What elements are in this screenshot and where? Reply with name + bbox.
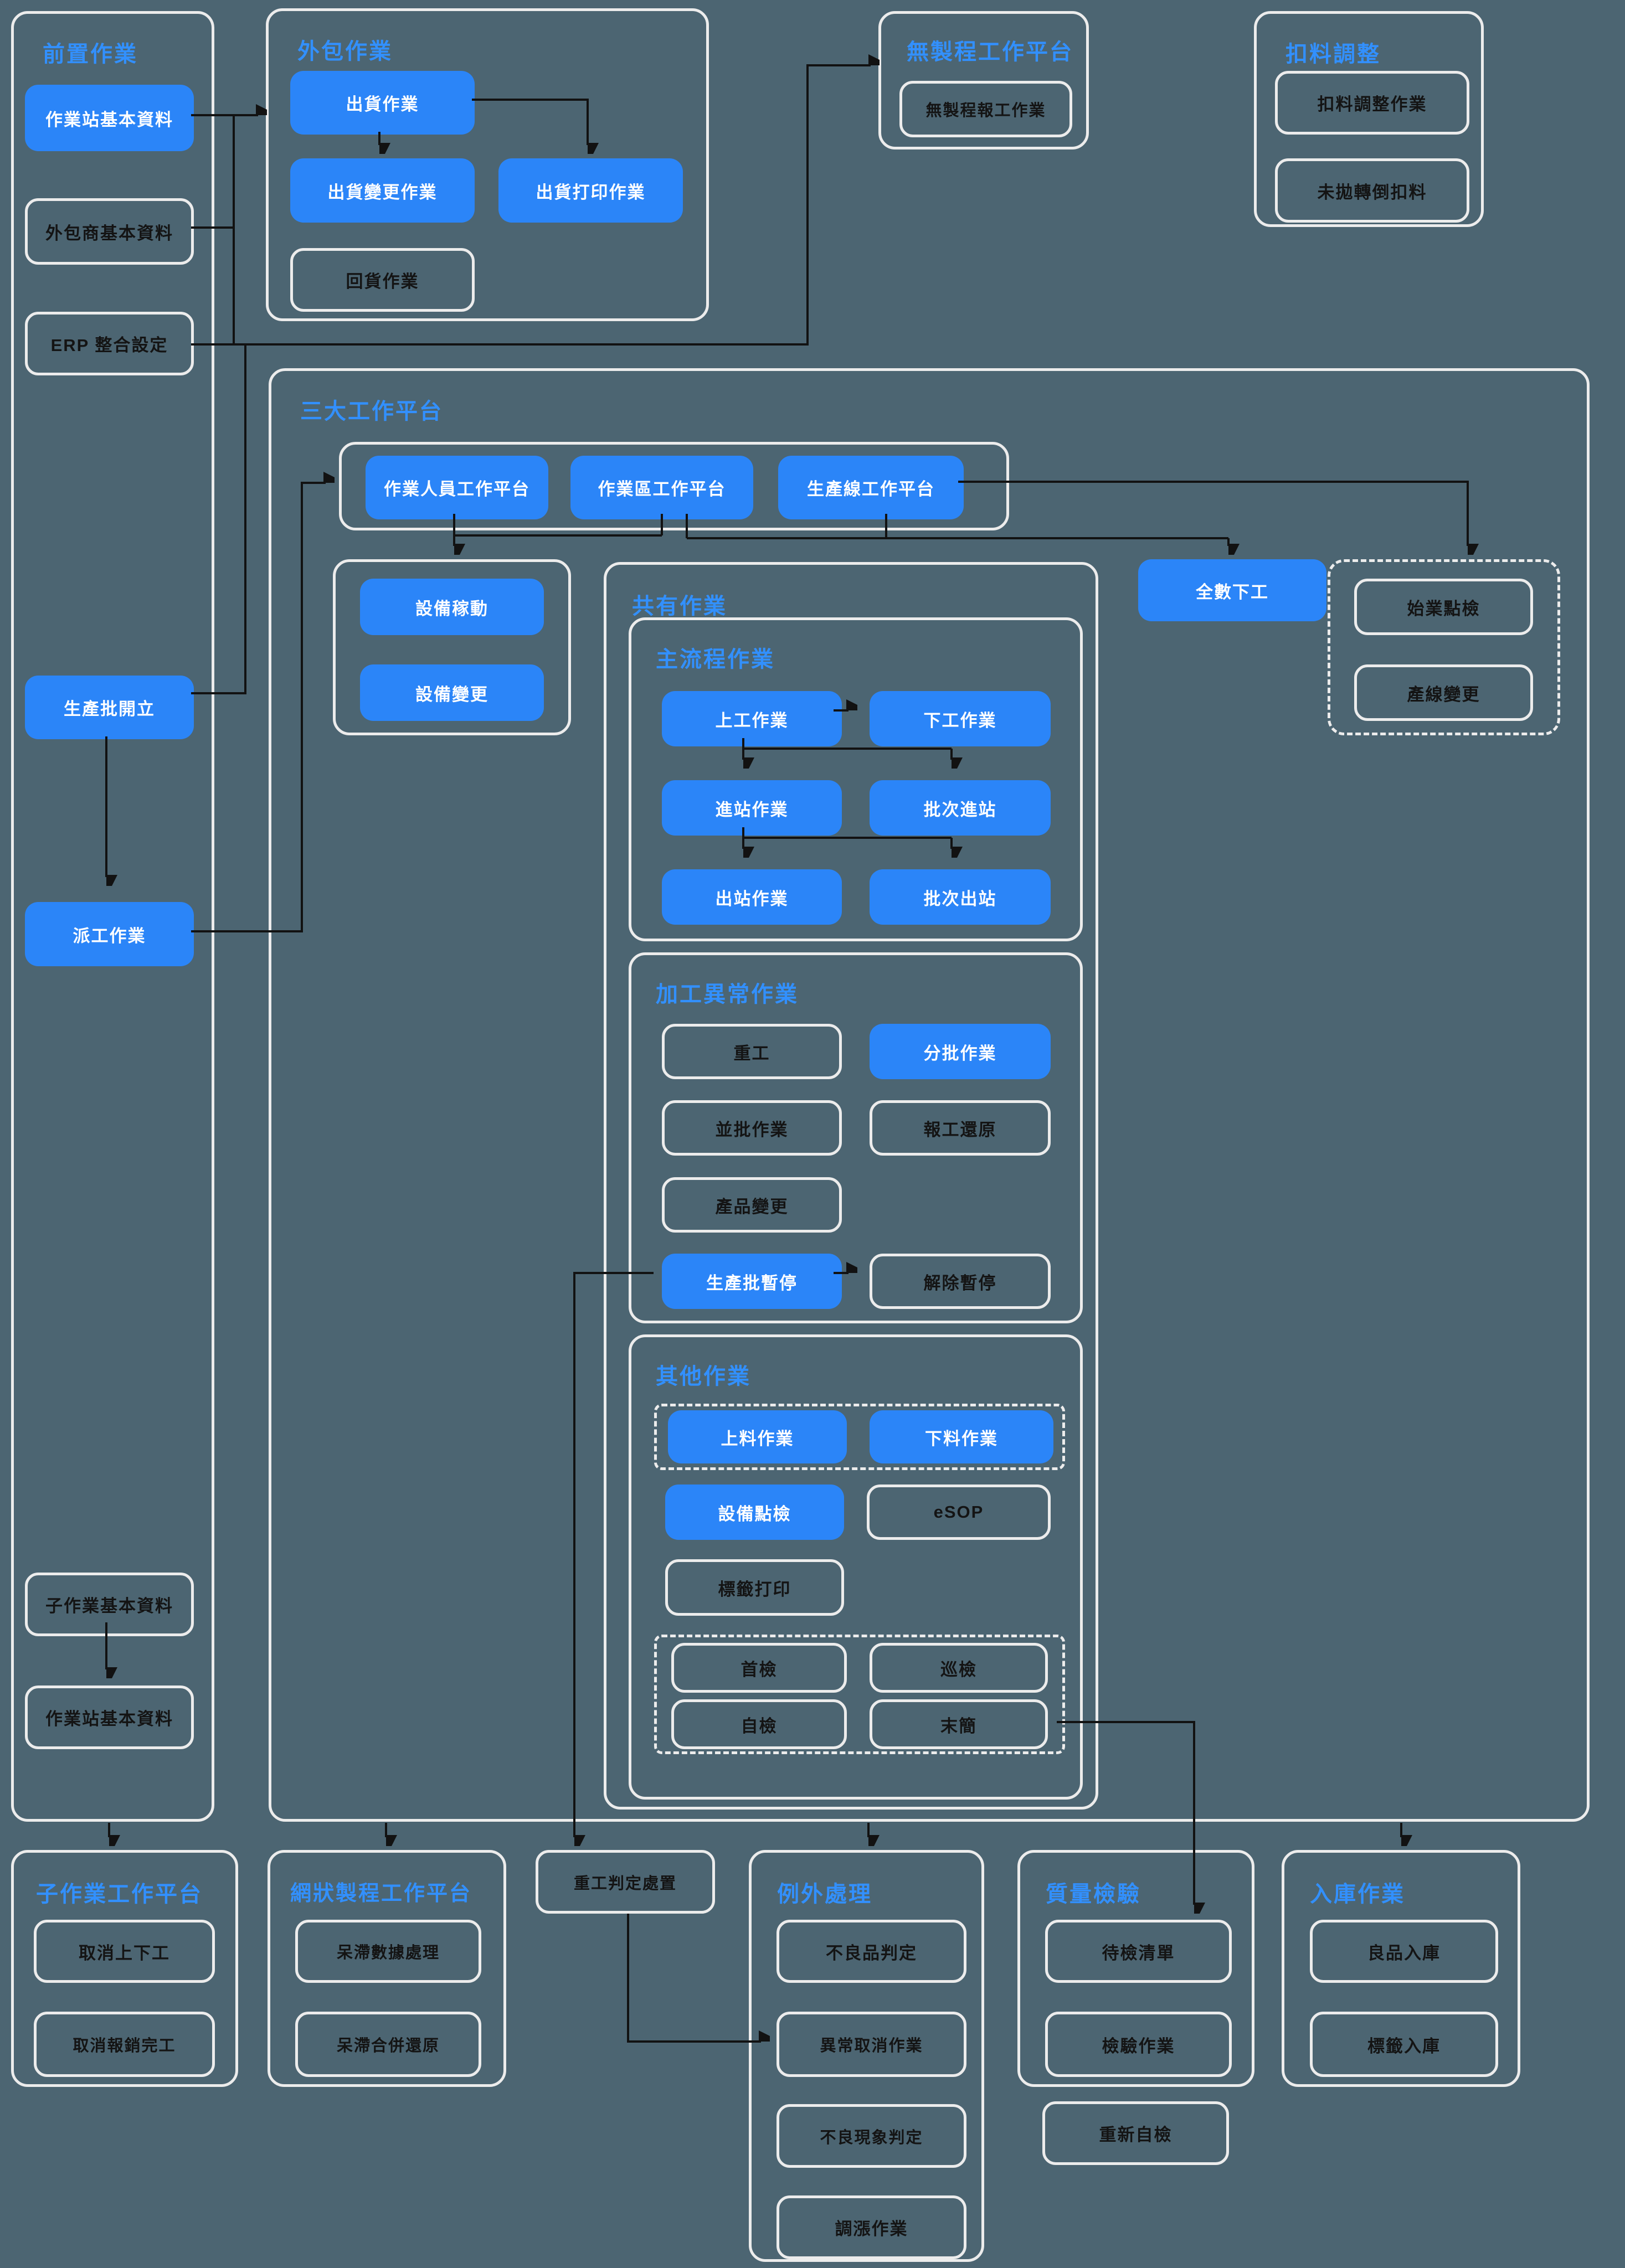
node-pending-list: 待檢清單 [1045,1920,1232,1983]
group-equipment: 設備稼動 設備變更 [333,559,571,735]
node-on-work: 上工作業 [662,691,842,746]
node-product-change: 產品變更 [662,1177,842,1233]
group-three-platforms: 三大工作平台 作業人員工作平台 作業區工作平台 生產線工作平台 設備稼動 設備變… [269,368,1590,1822]
group-title: 三大工作平台 [300,393,443,425]
node-merge-batch: 並批作業 [662,1100,842,1156]
mes-flow-diagram: 前置作業 作業站基本資料 外包商基本資料 ERP 整合設定 生產批開立 派工作業… [0,0,1625,2268]
node-defect-phenomenon: 不良現象判定 [776,2104,966,2168]
subgroup-inspection: 首檢 巡檢 自檢 末簡 [654,1635,1065,1754]
node-station-out: 出站作業 [662,869,842,925]
node-platform-operator: 作業人員工作平台 [366,456,548,519]
node-platform-area: 作業區工作平台 [570,456,753,519]
node-all-off-work: 全數下工 [1138,559,1326,621]
group-title: 共有作業 [632,588,727,620]
node-pause-release: 解除暫停 [870,1254,1051,1309]
node-workstation-basic: 作業站基本資料 [25,85,194,151]
group-mesh-process-platform: 網狀製程工作平台 呆滯數據處理 呆滯合併還原 [268,1850,506,2087]
node-equip-change: 設備變更 [360,664,544,721]
node-stagnant-data: 呆滯數據處理 [295,1920,481,1983]
subgroup-material: 上料作業 下料作業 [654,1404,1065,1470]
group-title: 質量檢驗 [1046,1876,1141,1908]
group-title: 子作業工作平台 [36,1876,203,1908]
node-esop: eSOP [867,1484,1051,1540]
group-main-flow: 主流程作業 上工作業 下工作業 進站作業 批次進站 出站作業 批次出站 [629,617,1083,941]
node-patrol-inspect: 巡檢 [870,1643,1048,1693]
node-stagnant-merge: 呆滯合併還原 [295,2012,481,2077]
group-title: 主流程作業 [656,641,775,673]
group-process-abnormal: 加工異常作業 重工 分批作業 並批作業 報工還原 產品變更 生產批暫停 解除暫停 [629,952,1083,1323]
node-deduct-unposted: 未拋轉倒扣料 [1275,158,1469,223]
group-deduct-adjust: 扣料調整 扣料調整作業 未拋轉倒扣料 [1254,11,1484,227]
group-title: 無製程工作平台 [907,34,1073,66]
group-title: 前置作業 [43,36,138,68]
group-title: 外包作業 [297,33,393,65]
node-good-in: 良品入庫 [1310,1920,1498,1983]
group-pre-operations: 前置作業 作業站基本資料 外包商基本資料 ERP 整合設定 生產批開立 派工作業… [11,11,214,1822]
node-vendor-basic: 外包商基本資料 [25,198,194,265]
group-warehouse: 入庫作業 良品入庫 標籤入庫 [1282,1850,1520,2087]
node-rework: 重工 [662,1024,842,1079]
node-self-inspect: 自檢 [671,1699,847,1749]
node-line-change: 產線變更 [1354,664,1533,721]
node-cancel-onoff: 取消上下工 [34,1920,215,1983]
node-startup-check: 始業點檢 [1354,579,1533,635]
node-equip-utilization: 設備稼動 [360,579,544,635]
node-report-restore: 報工還原 [870,1100,1051,1156]
node-last-inspect: 末簡 [870,1699,1048,1749]
node-deduct-adjust: 扣料調整作業 [1275,71,1469,135]
node-sub-op-basic: 子作業基本資料 [25,1573,194,1636]
node-workstation-basic-2: 作業站基本資料 [25,1685,194,1749]
node-rework-judge: 重工判定處置 [536,1850,715,1914]
node-re-self-check: 重新自檢 [1042,2101,1229,2165]
node-adjust-op: 調漲作業 [776,2195,966,2259]
group-exception: 例外處理 不良品判定 異常取消作業 不良現象判定 調漲作業 [749,1850,984,2262]
group-title: 網狀製程工作平台 [290,1876,472,1906]
container-platform-row: 作業人員工作平台 作業區工作平台 生產線工作平台 [339,442,1009,530]
node-ship-return: 回貨作業 [290,248,475,312]
node-batch-out: 批次出站 [870,869,1051,925]
node-platform-line: 生產線工作平台 [778,456,964,519]
group-sub-op-platform: 子作業工作平台 取消上下工 取消報銷完工 [11,1850,238,2087]
node-dispatch: 派工作業 [25,902,194,966]
node-material-load: 上料作業 [668,1410,847,1463]
node-erp-integration: ERP 整合設定 [25,312,194,375]
group-title: 其他作業 [656,1358,751,1390]
node-inspect-op: 檢驗作業 [1045,2012,1232,2077]
node-noproc-report: 無製程報工作業 [899,81,1072,137]
group-title: 加工異常作業 [656,976,799,1008]
group-other-operations: 其他作業 上料作業 下料作業 設備點檢 eSOP 標籤打印 首檢 巡檢 自檢 末… [629,1334,1083,1800]
node-batch-in: 批次進站 [870,780,1051,836]
node-first-inspect: 首檢 [671,1643,847,1693]
node-cancel-report: 取消報銷完工 [34,2012,215,2077]
node-abnormal-cancel: 異常取消作業 [776,2012,966,2077]
node-split-batch: 分批作業 [870,1024,1051,1079]
node-station-in: 進站作業 [662,780,842,836]
node-label-print: 標籤打印 [665,1559,844,1616]
node-batch-create: 生產批開立 [25,676,194,739]
group-title: 扣料調整 [1285,36,1381,68]
node-label-in: 標籤入庫 [1310,2012,1498,2077]
group-outsourcing: 外包作業 出貨作業 出貨變更作業 出貨打印作業 回貨作業 [266,8,709,321]
node-ship-change: 出貨變更作業 [290,158,475,223]
node-batch-pause: 生產批暫停 [662,1254,842,1309]
node-ship-print: 出貨打印作業 [498,158,683,223]
connector-rework-judge-to-cancel [628,1914,761,2042]
group-no-process: 無製程工作平台 無製程報工作業 [878,11,1089,150]
node-defect-judge: 不良品判定 [776,1920,966,1983]
node-off-work: 下工作業 [870,691,1051,746]
group-startup-check: 始業點檢 產線變更 [1328,559,1560,735]
group-title: 入庫作業 [1310,1876,1405,1908]
node-equip-check: 設備點檢 [665,1484,844,1540]
group-title: 例外處理 [777,1876,872,1908]
node-material-unload: 下料作業 [870,1410,1053,1463]
node-ship: 出貨作業 [290,71,475,135]
group-quality-inspection: 質量檢驗 待檢清單 檢驗作業 [1017,1850,1254,2087]
group-shared-operations: 共有作業 主流程作業 上工作業 下工作業 進站作業 批次進站 出站作業 批次出站… [604,562,1098,1810]
